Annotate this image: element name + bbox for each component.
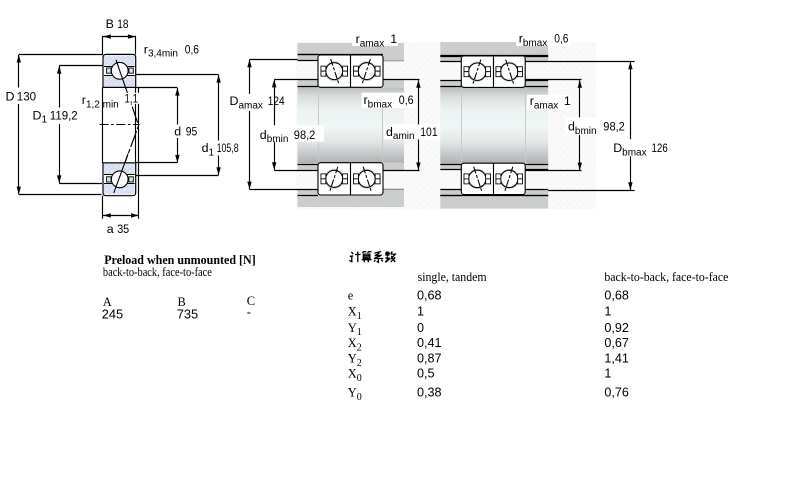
svg-text:95: 95 (186, 124, 198, 138)
svg-text:130: 130 (17, 89, 36, 103)
svg-text:35: 35 (117, 222, 129, 236)
svg-text:0,6: 0,6 (554, 32, 568, 46)
svg-text:1: 1 (390, 32, 397, 46)
svg-text:98,2: 98,2 (294, 128, 316, 142)
svg-text:0,68: 0,68 (604, 288, 629, 302)
svg-text:d: d (174, 124, 181, 138)
svg-text:1: 1 (604, 305, 611, 319)
svg-text:245: 245 (102, 306, 123, 321)
svg-text:1: 1 (417, 305, 424, 319)
svg-text:126: 126 (652, 141, 668, 155)
svg-text:0,41: 0,41 (417, 336, 442, 350)
svg-text:0,67: 0,67 (604, 336, 629, 350)
svg-text:101: 101 (420, 125, 437, 139)
svg-text:0,5: 0,5 (417, 367, 435, 381)
svg-text:0: 0 (417, 321, 424, 335)
svg-text:0,38: 0,38 (417, 386, 442, 400)
svg-text:1: 1 (564, 94, 571, 108)
svg-text:e: e (348, 288, 354, 302)
svg-text:735: 735 (177, 306, 198, 321)
svg-text:1,1: 1,1 (125, 91, 139, 105)
svg-text:0,68: 0,68 (417, 288, 442, 302)
svg-text:0,92: 0,92 (604, 321, 629, 335)
svg-text:-: - (247, 305, 251, 320)
svg-text:single, tandem: single, tandem (418, 270, 487, 284)
svg-text:D: D (6, 89, 15, 103)
svg-text:a: a (107, 222, 114, 236)
svg-text:119,2: 119,2 (50, 108, 78, 122)
svg-text:0,6: 0,6 (399, 93, 414, 107)
svg-text:1: 1 (604, 367, 611, 381)
svg-text:0,6: 0,6 (185, 42, 199, 56)
svg-text:0,76: 0,76 (604, 386, 629, 400)
svg-text:B: B (106, 17, 114, 31)
svg-text:back-to-back, face-to-face: back-to-back, face-to-face (604, 270, 728, 284)
svg-text:18: 18 (117, 17, 128, 31)
svg-text:98,2: 98,2 (603, 120, 625, 134)
svg-text:124: 124 (268, 94, 285, 108)
svg-text:0,87: 0,87 (417, 351, 442, 365)
svg-text:105,8: 105,8 (217, 141, 239, 155)
svg-text:back-to-back, face-to-face: back-to-back, face-to-face (103, 265, 212, 279)
svg-text:1,41: 1,41 (604, 351, 629, 365)
